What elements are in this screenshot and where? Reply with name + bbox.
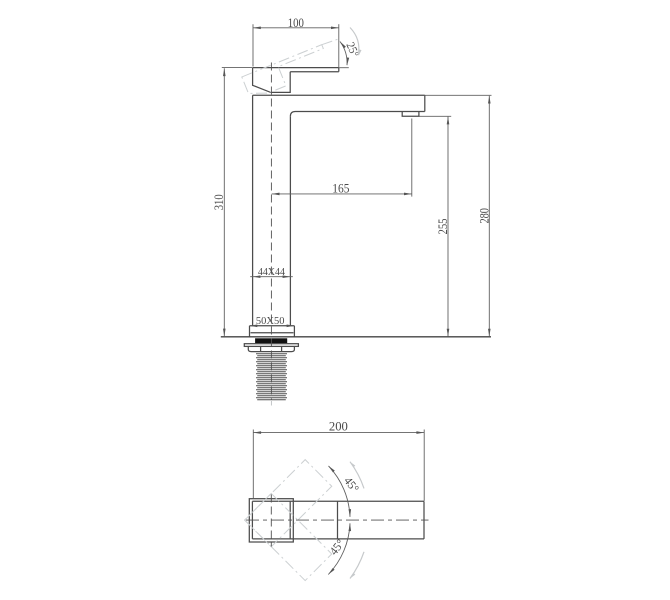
svg-text:200: 200 (329, 419, 348, 433)
svg-text:50X50: 50X50 (256, 316, 285, 327)
svg-text:310: 310 (212, 194, 226, 210)
svg-text:280: 280 (477, 208, 491, 224)
svg-text:45°: 45° (326, 536, 347, 557)
svg-text:44X44: 44X44 (258, 267, 285, 278)
svg-text:255: 255 (436, 219, 450, 235)
svg-text:100: 100 (288, 16, 304, 30)
svg-text:165: 165 (332, 182, 349, 196)
